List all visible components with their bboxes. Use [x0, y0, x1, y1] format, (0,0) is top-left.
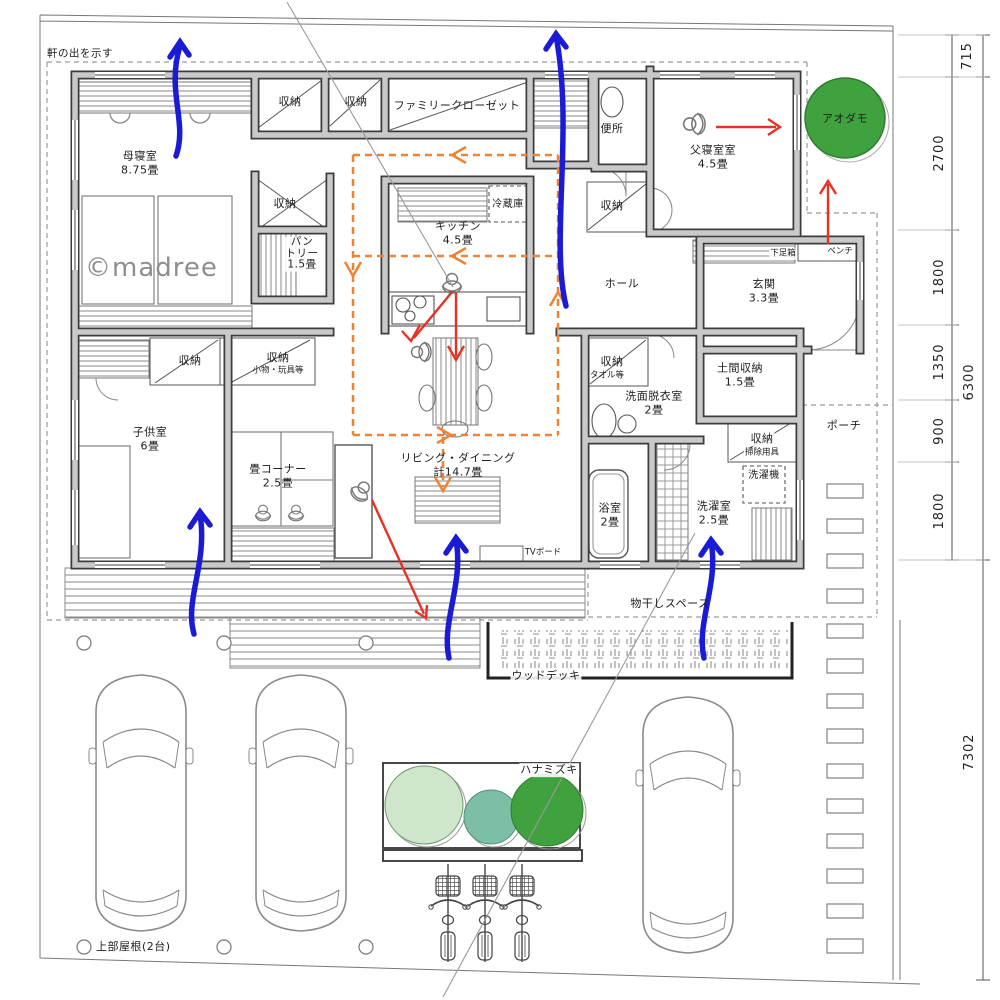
room-washroom: 洗面脱衣室 2畳	[625, 389, 683, 417]
shoe-box-label: 下足箱	[769, 249, 797, 260]
storage-label: 収納	[179, 354, 202, 368]
room-father-bedroom: 父寝室室 4.5畳	[690, 143, 736, 171]
room-laundry: 洗濯室 2.5畳	[696, 499, 733, 527]
storage-label: 収納	[274, 197, 297, 211]
storage-label: 収納	[750, 432, 775, 446]
dim-7302: 7302	[962, 733, 978, 770]
storage-label: 収納	[267, 351, 290, 365]
room-family-closet: ファミリークローゼット	[394, 99, 521, 113]
room-bath: 浴室 2畳	[598, 501, 623, 529]
room-toilet: 便所	[601, 122, 624, 136]
storage-note-towels: タオル等	[590, 371, 624, 382]
room-porch: ポーチ	[827, 419, 862, 433]
room-hall: ホール	[605, 277, 640, 291]
tree-teal-icon	[464, 790, 518, 844]
storage-label: 収納	[279, 95, 302, 109]
dim-6300: 6300	[962, 363, 978, 400]
room-genkan: 玄関 3.3畳	[749, 277, 780, 305]
tv-board-label: TVボード	[524, 548, 563, 559]
wood-deck-label: ウッドデッキ	[511, 669, 582, 683]
hanamizuki-planter	[383, 763, 586, 861]
carport-note: 上部屋根(2台)	[96, 940, 171, 954]
dim-715: 715	[960, 42, 976, 70]
room-living-dining: リビング・ダイニング 計14.7畳	[401, 451, 516, 479]
room-mother-bedroom: 母寝室 8.75畳	[121, 149, 159, 177]
dim-1800b: 1800	[932, 492, 948, 529]
dim-1350: 1350	[932, 343, 948, 380]
room-doma-storage: 土間収納 1.5畳	[717, 361, 763, 389]
dim-1800a: 1800	[932, 258, 948, 295]
storage-label: 収納	[345, 95, 368, 109]
hanamizuki-label: ハナミズキ	[519, 763, 579, 777]
storage-label: 収納	[601, 355, 624, 369]
refrigerator-label: 冷蔵庫	[491, 199, 525, 212]
tree-light-icon	[385, 766, 463, 844]
room-pantry: パン トリー 1.5畳	[285, 237, 320, 272]
washer-label: 洗濯機	[747, 470, 781, 483]
eave-note: 軒の出を示す	[47, 47, 113, 60]
aodamo-label: アオダモ	[822, 112, 868, 126]
storage-note-small-items: 小物・玩具等	[252, 366, 303, 377]
watermark: ©madree	[85, 252, 218, 285]
bench-label: ベンチ	[826, 247, 854, 258]
dim-900: 900	[932, 417, 948, 445]
room-kids: 子供室 6畳	[133, 425, 168, 453]
tree-green-icon	[511, 774, 583, 846]
floor-plan-page: 軒の出を示す 母寝室 8.75畳 収納 収納 ファミリークローゼット 便所 父寝…	[0, 0, 1000, 1000]
room-kitchen: キッチン 4.5畳	[435, 219, 481, 247]
room-tatami-corner: 畳コーナー 2.5畳	[249, 462, 307, 490]
storage-label: 収納	[601, 199, 624, 213]
drying-space-label: 物干しスペース	[630, 597, 709, 611]
storage-note-cleaning: 掃除用具	[744, 448, 780, 459]
dim-2700: 2700	[932, 134, 948, 171]
stepping-stones	[827, 484, 863, 953]
